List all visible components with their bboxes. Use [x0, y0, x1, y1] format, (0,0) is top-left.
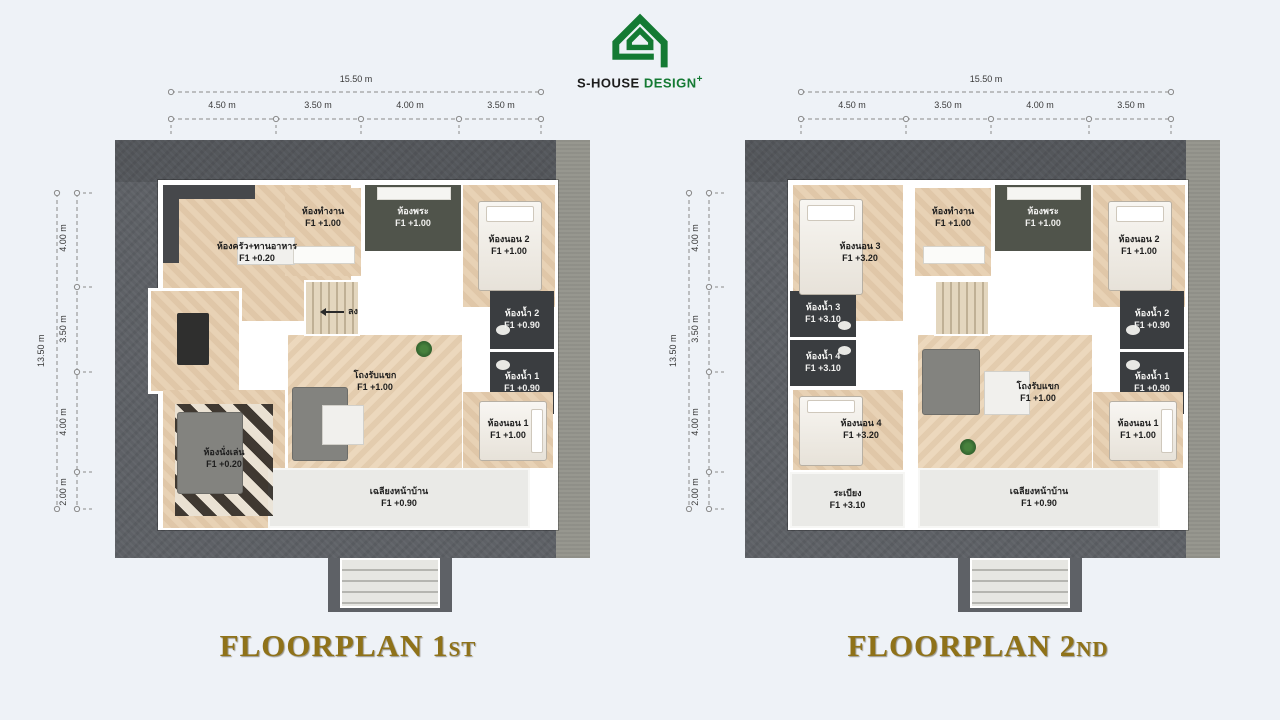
plan2-height-seg-3: 4.00 m [690, 408, 700, 436]
room-label: ห้องนอน 3 F1 +3.20 [840, 241, 881, 264]
dimension-line [168, 87, 544, 97]
left-arrow-icon [322, 311, 344, 313]
room-living: ห้องนั่งเล่น F1 +0.20 [163, 390, 285, 528]
dining-nook [148, 288, 242, 394]
brand-plus: + [697, 74, 703, 85]
brand-name-shouse: S-HOUSE [577, 75, 640, 90]
room-prayer: ห้องพระ F1 +1.00 [365, 185, 461, 251]
brand-name: S-HOUSE DESIGN+ [568, 74, 712, 90]
room-reception-hall: โถงรับแขก F1 +1.00 [288, 335, 462, 468]
sofa-icon [922, 349, 980, 415]
stairs [934, 280, 990, 336]
room-bedroom-2: ห้องนอน 2 F1 +1.00 [1093, 185, 1185, 307]
room-label: ห้องพระ F1 +1.00 [395, 206, 431, 229]
room-label: เฉลียงหน้าบ้าน F1 +0.90 [1010, 486, 1068, 509]
plan1-width-dimensions: 15.50 m 4.50 m 3.50 m 4.00 m 3.50 m [168, 74, 544, 136]
room-reception-hall: โถงรับแขก F1 +1.00 [918, 335, 1092, 468]
plan1-height-seg-1: 4.00 m [58, 224, 68, 252]
room-prayer: ห้องพระ F1 +1.00 [995, 185, 1091, 251]
kitchen-counter-icon [163, 185, 255, 199]
plan2-roof [745, 140, 1220, 182]
room-label: ระเบียง F1 +3.10 [830, 488, 866, 511]
dimension-line [798, 87, 1174, 97]
room-office: ห้องทำงาน F1 +1.00 [915, 188, 991, 276]
plan2-title-suffix: ND [1076, 637, 1108, 661]
plan1-walkway [556, 140, 590, 558]
plan2-title: FLOORPLAN 2ND [788, 628, 1168, 664]
plant-icon [960, 439, 976, 455]
bath-fixture-icon [496, 360, 510, 370]
desk-icon [923, 246, 985, 264]
plan1-width-seg-2: 3.50 m [304, 100, 332, 110]
coffee-table-icon [322, 405, 364, 445]
room-label: เฉลียงหน้าบ้าน F1 +0.90 [370, 486, 428, 509]
brand-name-design: DESIGN [644, 75, 697, 90]
plan2-height-seg-1: 4.00 m [690, 224, 700, 252]
room-label: ห้องนอน 1 F1 +1.00 [1118, 418, 1159, 441]
dining-table-icon [177, 313, 209, 365]
plan2-total-width-label: 15.50 m [798, 74, 1174, 84]
desk-icon [293, 246, 355, 264]
room-bedroom-1: ห้องนอน 1 F1 +1.00 [1093, 392, 1183, 468]
kitchen-counter-icon [163, 199, 179, 263]
plan1-title: FLOORPLAN 1ST [158, 628, 538, 664]
dimension-line [704, 190, 726, 512]
room-bedroom-1: ห้องนอน 1 F1 +1.00 [463, 392, 553, 468]
plan1-roof [115, 140, 590, 182]
plan2-width-seg-1: 4.50 m [838, 100, 866, 110]
plan1-total-width-label: 15.50 m [168, 74, 544, 84]
room-label: ห้องนั่งเล่น F1 +0.20 [203, 447, 244, 470]
plant-icon [416, 341, 432, 357]
room-bedroom-4: ห้องนอน 4 F1 +3.20 [793, 390, 903, 470]
plan1-title-suffix: ST [449, 637, 477, 661]
dimension-line [72, 190, 94, 512]
room-front-porch: เฉลียงหน้าบ้าน F1 +0.90 [268, 468, 530, 528]
altar-table-icon [1007, 187, 1081, 200]
plan2-total-height-label: 13.50 m [668, 190, 678, 512]
plan2-width-seg-2: 3.50 m [934, 100, 962, 110]
room-label: ห้องน้ำ 1 F1 +0.90 [504, 371, 540, 394]
room-bathroom-3: ห้องน้ำ 3 F1 +3.10 [790, 291, 856, 337]
plan2-width-seg-3: 4.00 m [1026, 100, 1054, 110]
room-label: ห้องน้ำ 2 F1 +0.90 [504, 308, 540, 331]
room-label: ห้องน้ำ 2 F1 +0.90 [1134, 308, 1170, 331]
plan2-height-seg-4: 2.00 m [690, 478, 700, 506]
room-bathroom-2: ห้องน้ำ 2 F1 +0.90 [490, 291, 554, 349]
plan2-width-seg-4: 3.50 m [1117, 100, 1145, 110]
plan1-height-seg-2: 3.50 m [58, 315, 68, 343]
room-balcony: ระเบียง F1 +3.10 [790, 472, 905, 528]
plan1-width-seg-4: 3.50 m [487, 100, 515, 110]
plan1-height-seg-3: 4.00 m [58, 408, 68, 436]
room-label: ห้องนอน 2 F1 +1.00 [1119, 234, 1160, 257]
altar-table-icon [377, 187, 451, 200]
room-front-porch: เฉลียงหน้าบ้าน F1 +0.90 [918, 468, 1160, 528]
plan1-entry-steps-block [328, 558, 452, 612]
plan1-width-seg-3: 4.00 m [396, 100, 424, 110]
plan1-entry-steps [340, 558, 440, 608]
room-label: ห้องน้ำ 3 F1 +3.10 [805, 302, 841, 325]
plan1-height-dimensions: 13.50 m 4.00 m 3.50 m 4.00 m 2.00 m [40, 190, 104, 512]
room-label: ห้องน้ำ 1 F1 +0.90 [1134, 371, 1170, 394]
room-label: ห้องครัว+ทานอาหาร F1 +0.20 [217, 241, 297, 264]
plan1-height-seg-4: 2.00 m [58, 478, 68, 506]
dimension-line [168, 114, 544, 136]
room-label: โถงรับแขก F1 +1.00 [1017, 381, 1060, 404]
room-label: ห้องนอน 1 F1 +1.00 [488, 418, 529, 441]
room-label: ห้องน้ำ 4 F1 +3.10 [805, 351, 841, 374]
plan2-height-dimensions: 13.50 m 4.00 m 3.50 m 4.00 m 2.00 m [672, 190, 736, 512]
room-bathroom-4: ห้องน้ำ 4 F1 +3.10 [790, 340, 856, 386]
plan1-total-height-label: 13.50 m [36, 190, 46, 512]
room-bathroom-2: ห้องน้ำ 2 F1 +0.90 [1120, 291, 1184, 349]
dimension-line [798, 114, 1174, 136]
room-label: ห้องนอน 4 F1 +3.20 [841, 418, 882, 441]
room-label: ห้องทำงาน F1 +1.00 [302, 206, 344, 229]
plan2-entry-steps [970, 558, 1070, 608]
room-label: ห้องพระ F1 +1.00 [1025, 206, 1061, 229]
plan1-width-seg-1: 4.50 m [208, 100, 236, 110]
room-label: โถงรับแขก F1 +1.00 [354, 370, 397, 393]
plan2-width-dimensions: 15.50 m 4.50 m 3.50 m 4.00 m 3.50 m [798, 74, 1174, 136]
room-bedroom-2: ห้องนอน 2 F1 +1.00 [463, 185, 555, 307]
room-label: ห้องนอน 2 F1 +1.00 [489, 234, 530, 257]
plan2-entry-steps-block [958, 558, 1082, 612]
house-logo-icon [601, 6, 679, 72]
bath-fixture-icon [1126, 360, 1140, 370]
plan2-walkway [1186, 140, 1220, 558]
plan2-height-seg-2: 3.50 m [690, 315, 700, 343]
brand-logo: S-HOUSE DESIGN+ [568, 6, 712, 90]
room-label: ห้องทำงาน F1 +1.00 [932, 206, 974, 229]
stairs-direction-label: ลง [322, 304, 358, 318]
